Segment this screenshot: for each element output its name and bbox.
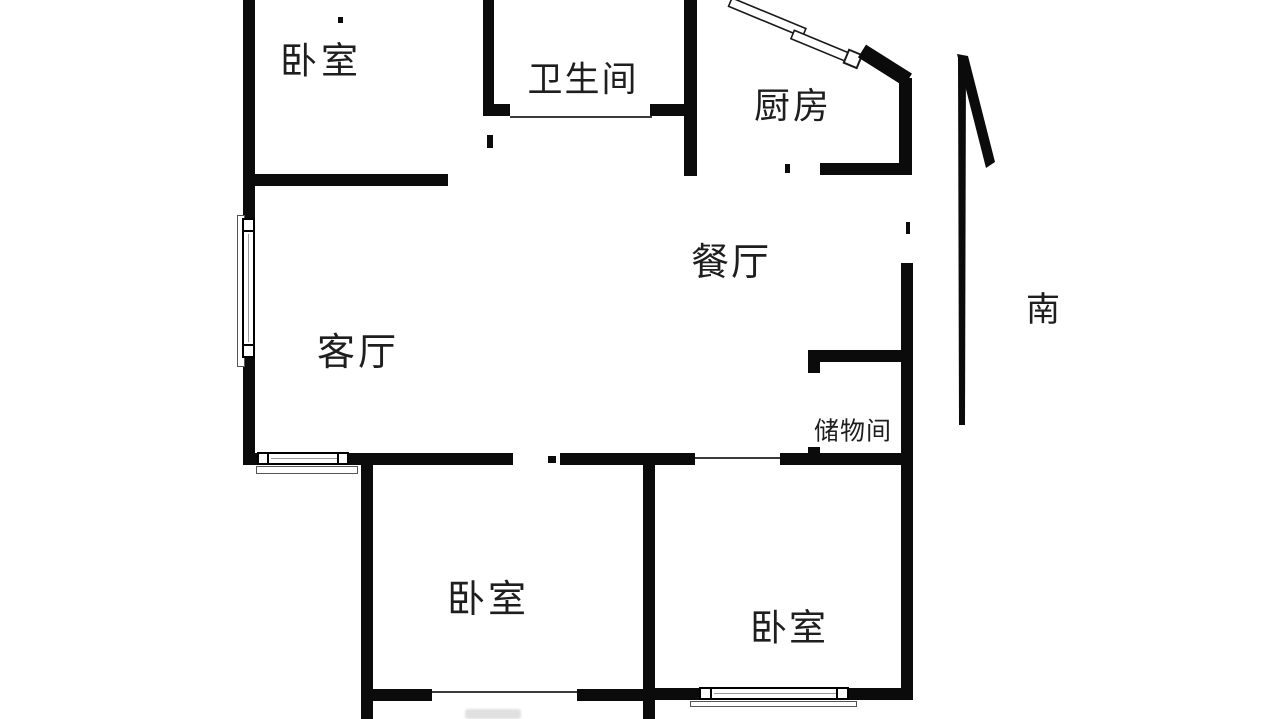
kitchen-diagonal-door xyxy=(725,0,863,68)
wall-kitchen-diagonal xyxy=(862,51,908,80)
room-label-bedroom-top-left: 卧室 xyxy=(280,44,362,81)
room-label-bedroom-bottom-middle: 卧室 xyxy=(447,581,529,619)
diagonal-and-arrow-layer xyxy=(0,0,1280,719)
room-label-living: 客厅 xyxy=(317,334,399,372)
room-label-bathroom: 卫生间 xyxy=(527,63,638,98)
room-label-storage: 储物间 xyxy=(814,420,892,445)
room-label-bedroom-bottom-right: 卧室 xyxy=(750,611,828,648)
room-label-dining: 餐厅 xyxy=(691,244,771,282)
floor-plan: 卧室 卫生间 厨房 餐厅 客厅 储物间 卧室 卧室 南 xyxy=(0,0,1280,719)
south-arrow-icon xyxy=(957,54,995,425)
compass-south-label: 南 xyxy=(1026,294,1060,328)
room-label-kitchen: 厨房 xyxy=(754,88,832,124)
